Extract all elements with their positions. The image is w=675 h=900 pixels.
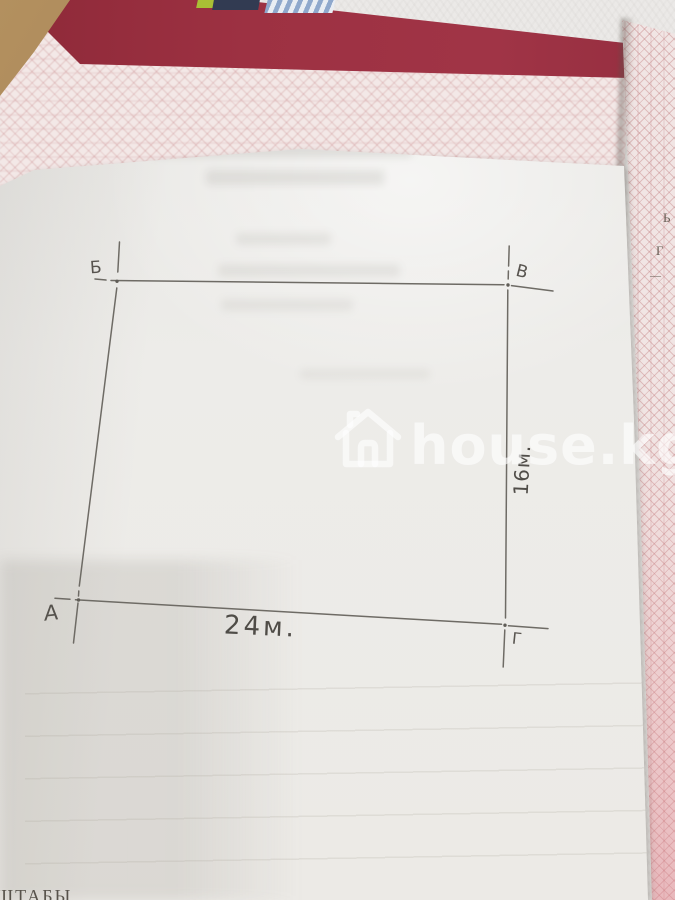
photo-of-land-plot-document: Ь Г — xyxy=(0,0,675,900)
photo-vignette xyxy=(0,0,675,900)
